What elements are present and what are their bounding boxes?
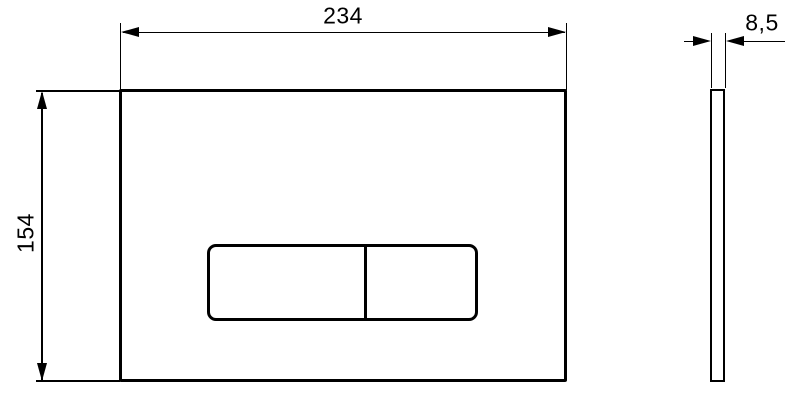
- dim-width-extension-right: [566, 23, 568, 90]
- dim-thickness-label: 8,5: [745, 12, 778, 35]
- dim-width-line: [123, 32, 565, 34]
- dim-width-arrowhead-right: [548, 27, 566, 37]
- dim-width-extension-left: [120, 23, 122, 90]
- dim-thickness-tail-right: [744, 41, 785, 43]
- button-panel-outline: [207, 244, 478, 321]
- dim-height-arrowhead-bottom: [37, 363, 47, 381]
- dim-width-arrowhead-left: [121, 27, 139, 37]
- dim-height-label: 154: [15, 213, 38, 253]
- dim-thickness-arrowhead-left: [693, 36, 711, 46]
- dim-thickness-arrowhead-right: [726, 36, 744, 46]
- dim-height-extension-bottom: [36, 380, 120, 382]
- dim-height-arrowhead-top: [37, 91, 47, 109]
- side-plate-outline: [710, 89, 725, 382]
- button-divider-line: [364, 247, 367, 318]
- plate-outline: [119, 89, 567, 382]
- dim-width-label: 234: [323, 5, 363, 28]
- drawing-canvas: 234 154 8,5: [0, 0, 800, 413]
- dim-height-line: [41, 93, 43, 380]
- dim-height-extension-top: [36, 90, 120, 92]
